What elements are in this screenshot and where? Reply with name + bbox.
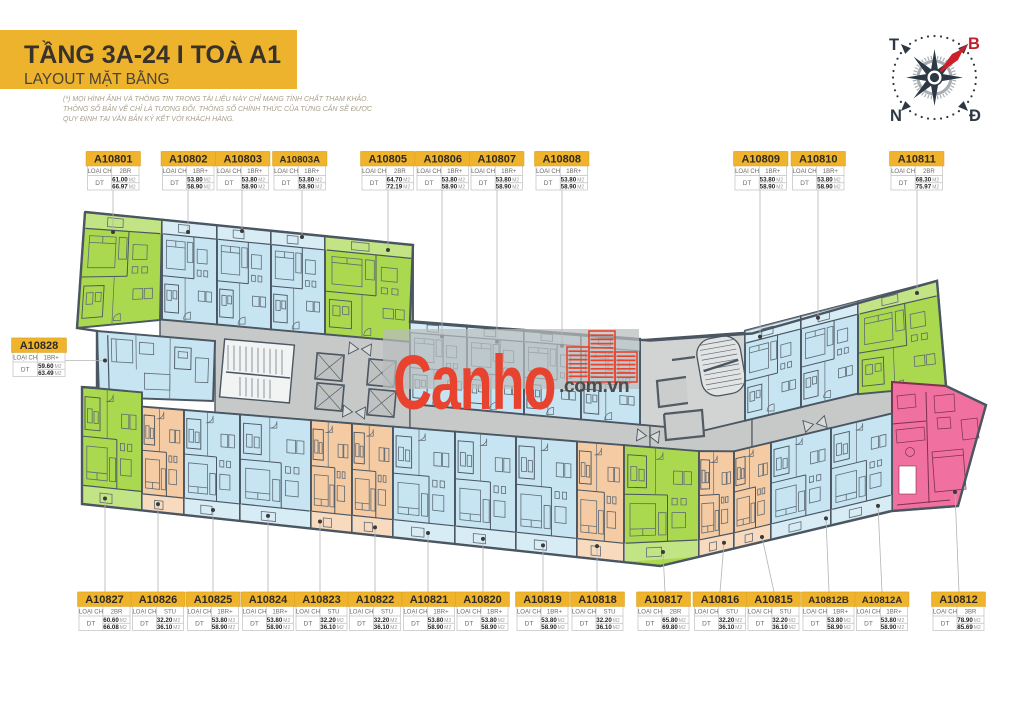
svg-text:A10810: A10810 xyxy=(799,154,838,166)
svg-text:LOẠI CH: LOẠI CH xyxy=(536,169,560,175)
svg-text:DT: DT xyxy=(899,180,908,187)
svg-text:DT: DT xyxy=(544,180,553,187)
svg-text:53.80: 53.80 xyxy=(817,177,833,184)
svg-text:.com.vn: .com.vn xyxy=(559,375,629,397)
svg-text:1BR+: 1BR+ xyxy=(217,610,233,616)
svg-text:M2: M2 xyxy=(512,178,519,184)
svg-text:60.60: 60.60 xyxy=(103,617,119,624)
svg-text:DT: DT xyxy=(304,621,313,628)
svg-text:A10819: A10819 xyxy=(523,594,562,606)
svg-text:M2: M2 xyxy=(120,625,127,631)
svg-text:A10828: A10828 xyxy=(20,340,59,352)
svg-text:M2: M2 xyxy=(315,185,322,191)
svg-text:M2: M2 xyxy=(512,185,519,191)
svg-text:M2: M2 xyxy=(679,618,686,624)
svg-text:STU: STU xyxy=(779,610,791,616)
svg-text:53.80: 53.80 xyxy=(496,177,512,184)
svg-text:A10811: A10811 xyxy=(898,154,936,166)
svg-text:M2: M2 xyxy=(834,178,841,184)
svg-text:32.20: 32.20 xyxy=(772,617,788,624)
svg-text:3BR: 3BR xyxy=(965,610,977,616)
svg-text:M2: M2 xyxy=(228,625,235,631)
svg-text:M2: M2 xyxy=(337,625,344,631)
svg-text:53.80: 53.80 xyxy=(442,177,458,184)
svg-text:M2: M2 xyxy=(789,625,796,631)
svg-text:58.90: 58.90 xyxy=(496,184,512,191)
svg-text:A10812A: A10812A xyxy=(862,595,903,606)
svg-text:LOẠI CH: LOẠI CH xyxy=(471,169,495,175)
svg-text:STU: STU xyxy=(327,610,339,616)
svg-text:M2: M2 xyxy=(613,618,620,624)
svg-text:53.80: 53.80 xyxy=(481,617,497,624)
svg-text:M2: M2 xyxy=(932,185,939,191)
svg-text:53.80: 53.80 xyxy=(881,617,897,624)
svg-text:LOẠI CH: LOẠI CH xyxy=(349,610,373,616)
svg-text:M2: M2 xyxy=(577,185,584,191)
svg-text:A10823: A10823 xyxy=(302,594,341,606)
svg-text:M2: M2 xyxy=(558,618,565,624)
svg-text:53.80: 53.80 xyxy=(541,617,557,624)
svg-text:A10824: A10824 xyxy=(249,594,288,606)
svg-text:32.20: 32.20 xyxy=(320,617,336,624)
svg-text:DT: DT xyxy=(756,621,765,628)
svg-text:LOẠI CH: LOẠI CH xyxy=(362,169,386,175)
svg-text:LOẠI CH: LOẠI CH xyxy=(242,610,266,616)
svg-text:58.90: 58.90 xyxy=(267,624,283,631)
svg-text:1BR+: 1BR+ xyxy=(272,610,288,616)
svg-text:M2: M2 xyxy=(444,625,451,631)
svg-text:M2: M2 xyxy=(498,625,505,631)
svg-text:M2: M2 xyxy=(129,185,136,191)
svg-text:LAYOUT MẶT BẰNG: LAYOUT MẶT BẰNG xyxy=(24,70,170,88)
svg-text:M2: M2 xyxy=(258,178,265,184)
svg-text:M2: M2 xyxy=(458,178,465,184)
svg-text:M2: M2 xyxy=(444,618,451,624)
svg-text:1BR+: 1BR+ xyxy=(823,169,839,175)
svg-text:DT: DT xyxy=(282,180,291,187)
svg-text:2BR: 2BR xyxy=(394,169,406,175)
svg-text:LOẠI CH: LOẠI CH xyxy=(572,610,596,616)
svg-text:M2: M2 xyxy=(120,618,127,624)
svg-text:M2: M2 xyxy=(974,618,981,624)
svg-text:78.90: 78.90 xyxy=(957,617,973,624)
svg-text:DT: DT xyxy=(525,621,534,628)
svg-text:59.60: 59.60 xyxy=(38,363,54,370)
svg-text:DT: DT xyxy=(580,621,589,628)
svg-text:DT: DT xyxy=(250,621,259,628)
svg-text:53.80: 53.80 xyxy=(561,177,577,184)
svg-text:1BR+: 1BR+ xyxy=(304,169,320,175)
svg-text:2BR: 2BR xyxy=(120,169,132,175)
svg-text:LOẠI CH: LOẠI CH xyxy=(694,610,718,616)
svg-text:M2: M2 xyxy=(228,618,235,624)
svg-text:M2: M2 xyxy=(735,618,742,624)
svg-text:DT: DT xyxy=(170,180,179,187)
svg-text:DT: DT xyxy=(646,621,655,628)
svg-text:A10807: A10807 xyxy=(477,154,516,166)
svg-text:M2: M2 xyxy=(337,618,344,624)
svg-text:2BR: 2BR xyxy=(670,610,682,616)
svg-text:A10812: A10812 xyxy=(939,594,978,606)
svg-text:A10817: A10817 xyxy=(644,594,683,606)
svg-text:M2: M2 xyxy=(55,371,62,377)
svg-text:1BR+: 1BR+ xyxy=(547,610,563,616)
svg-text:A10818: A10818 xyxy=(578,594,617,606)
svg-text:36.10: 36.10 xyxy=(596,624,612,631)
svg-text:DT: DT xyxy=(95,180,104,187)
svg-text:68.30: 68.30 xyxy=(916,177,932,184)
svg-text:LOẠI CH: LOẠI CH xyxy=(803,610,827,616)
svg-text:LOẠI CH: LOẠI CH xyxy=(13,356,37,362)
svg-text:58.90: 58.90 xyxy=(827,624,843,631)
svg-text:DT: DT xyxy=(811,621,820,628)
svg-text:LOẠI CH: LOẠI CH xyxy=(88,169,112,175)
svg-text:M2: M2 xyxy=(173,618,180,624)
svg-text:A10801: A10801 xyxy=(94,154,133,166)
svg-text:DT: DT xyxy=(87,621,96,628)
svg-text:LOẠI CH: LOẠI CH xyxy=(132,610,156,616)
svg-text:1BR+: 1BR+ xyxy=(765,169,781,175)
svg-text:LOẠI CH: LOẠI CH xyxy=(735,169,759,175)
svg-text:A10815: A10815 xyxy=(754,594,793,606)
svg-text:1BR+: 1BR+ xyxy=(44,356,60,362)
svg-text:36.10: 36.10 xyxy=(374,624,390,631)
svg-text:1BR+: 1BR+ xyxy=(247,169,263,175)
svg-text:36.10: 36.10 xyxy=(320,624,336,631)
svg-text:DT: DT xyxy=(465,621,474,628)
svg-text:N: N xyxy=(890,107,902,125)
svg-text:DT: DT xyxy=(195,621,204,628)
svg-text:DT: DT xyxy=(140,621,149,628)
svg-text:M2: M2 xyxy=(283,625,290,631)
svg-text:M2: M2 xyxy=(679,625,686,631)
svg-text:M2: M2 xyxy=(390,618,397,624)
svg-text:66.97: 66.97 xyxy=(112,184,128,191)
svg-text:Canho: Canho xyxy=(393,341,555,427)
svg-text:STU: STU xyxy=(603,610,615,616)
svg-text:M2: M2 xyxy=(315,178,322,184)
svg-text:53.80: 53.80 xyxy=(212,617,228,624)
svg-text:58.90: 58.90 xyxy=(442,184,458,191)
svg-text:A10809: A10809 xyxy=(741,154,780,166)
svg-text:LOẠI CH: LOẠI CH xyxy=(638,610,662,616)
svg-text:A10803: A10803 xyxy=(223,154,262,166)
svg-text:66.08: 66.08 xyxy=(103,624,119,631)
svg-text:LOẠI CH: LOẠI CH xyxy=(79,610,103,616)
svg-text:DT: DT xyxy=(479,180,488,187)
svg-text:LOẠI CH: LOẠI CH xyxy=(187,610,211,616)
svg-text:58.90: 58.90 xyxy=(187,184,203,191)
svg-text:M2: M2 xyxy=(776,185,783,191)
svg-text:DT: DT xyxy=(864,621,873,628)
svg-text:A10806: A10806 xyxy=(423,154,462,166)
svg-text:M2: M2 xyxy=(204,185,211,191)
svg-text:58.90: 58.90 xyxy=(242,184,258,191)
svg-text:53.80: 53.80 xyxy=(187,177,203,184)
svg-text:69.80: 69.80 xyxy=(662,624,678,631)
svg-text:M2: M2 xyxy=(897,618,904,624)
svg-text:53.80: 53.80 xyxy=(299,177,315,184)
svg-text:M2: M2 xyxy=(776,178,783,184)
svg-text:STU: STU xyxy=(164,610,176,616)
svg-text:M2: M2 xyxy=(283,618,290,624)
svg-text:A10826: A10826 xyxy=(139,594,178,606)
svg-text:M2: M2 xyxy=(974,625,981,631)
svg-text:65.80: 65.80 xyxy=(662,617,678,624)
svg-text:53.80: 53.80 xyxy=(428,617,444,624)
svg-text:M2: M2 xyxy=(735,625,742,631)
svg-text:M2: M2 xyxy=(204,178,211,184)
svg-text:DT: DT xyxy=(702,621,711,628)
svg-text:58.90: 58.90 xyxy=(760,184,776,191)
svg-text:M2: M2 xyxy=(403,185,410,191)
svg-text:58.90: 58.90 xyxy=(881,624,897,631)
svg-text:75.97: 75.97 xyxy=(916,184,932,191)
svg-text:DT: DT xyxy=(370,180,379,187)
svg-text:A10808: A10808 xyxy=(542,154,581,166)
svg-text:A10821: A10821 xyxy=(410,594,449,606)
svg-text:A10802: A10802 xyxy=(169,154,208,166)
svg-text:LOẠI CH: LOẠI CH xyxy=(217,169,241,175)
svg-text:58.90: 58.90 xyxy=(817,184,833,191)
svg-text:A10812B: A10812B xyxy=(808,595,849,606)
svg-text:LOẠI CH: LOẠI CH xyxy=(274,169,298,175)
svg-text:QUY ĐỊNH TẠI VĂN BẢN KÝ KẾT VỚ: QUY ĐỊNH TẠI VĂN BẢN KÝ KẾT VỚI KHÁCH HÀ… xyxy=(63,114,234,123)
svg-text:58.90: 58.90 xyxy=(299,184,315,191)
svg-text:A10803A: A10803A xyxy=(279,155,320,166)
svg-text:36.10: 36.10 xyxy=(719,624,735,631)
svg-text:M2: M2 xyxy=(498,618,505,624)
svg-text:58.90: 58.90 xyxy=(561,184,577,191)
svg-text:A10820: A10820 xyxy=(463,594,502,606)
svg-text:M2: M2 xyxy=(844,618,851,624)
svg-text:DT: DT xyxy=(21,367,30,374)
svg-text:32.20: 32.20 xyxy=(719,617,735,624)
svg-text:A10822: A10822 xyxy=(356,594,395,606)
svg-text:LOẠI CH: LOẠI CH xyxy=(933,610,957,616)
svg-text:85.69: 85.69 xyxy=(957,624,973,631)
svg-text:TẦNG 3A-24 I TOÀ A1: TẦNG 3A-24 I TOÀ A1 xyxy=(24,40,281,69)
svg-text:64.70: 64.70 xyxy=(387,177,403,184)
svg-text:1BR+: 1BR+ xyxy=(447,169,463,175)
svg-text:DT: DT xyxy=(225,180,234,187)
svg-text:M2: M2 xyxy=(613,625,620,631)
svg-text:53.80: 53.80 xyxy=(242,177,258,184)
svg-text:58.90: 58.90 xyxy=(541,624,557,631)
svg-text:1BR+: 1BR+ xyxy=(433,610,449,616)
svg-text:58.90: 58.90 xyxy=(428,624,444,631)
svg-text:LOẠI CH: LOẠI CH xyxy=(403,610,427,616)
svg-text:72.19: 72.19 xyxy=(387,184,403,191)
svg-text:32.20: 32.20 xyxy=(596,617,612,624)
svg-text:A10825: A10825 xyxy=(194,594,233,606)
svg-text:2BR: 2BR xyxy=(923,169,935,175)
svg-text:M2: M2 xyxy=(458,185,465,191)
svg-text:36.10: 36.10 xyxy=(157,624,173,631)
svg-text:M2: M2 xyxy=(577,178,584,184)
svg-text:32.20: 32.20 xyxy=(157,617,173,624)
svg-text:DT: DT xyxy=(743,180,752,187)
svg-text:A10805: A10805 xyxy=(368,154,407,166)
svg-text:DT: DT xyxy=(357,621,366,628)
svg-text:1BR+: 1BR+ xyxy=(501,169,517,175)
svg-text:M2: M2 xyxy=(173,625,180,631)
svg-text:58.90: 58.90 xyxy=(212,624,228,631)
svg-text:LOẠI CH: LOẠI CH xyxy=(793,169,817,175)
svg-text:(*) MỌI HÌNH ẢNH VÀ THÔNG TIN: (*) MỌI HÌNH ẢNH VÀ THÔNG TIN TRONG TÀI … xyxy=(63,94,369,103)
svg-text:Đ: Đ xyxy=(969,107,981,125)
svg-text:A10816: A10816 xyxy=(701,594,740,606)
svg-text:M2: M2 xyxy=(844,625,851,631)
svg-text:LOẠI CH: LOẠI CH xyxy=(163,169,187,175)
svg-text:53.80: 53.80 xyxy=(827,617,843,624)
svg-text:DT: DT xyxy=(800,180,809,187)
svg-text:53.80: 53.80 xyxy=(760,177,776,184)
svg-text:A10827: A10827 xyxy=(85,594,124,606)
svg-text:DT: DT xyxy=(425,180,434,187)
svg-text:63.49: 63.49 xyxy=(38,370,54,377)
svg-text:32.20: 32.20 xyxy=(374,617,390,624)
svg-text:LOẠI CH: LOẠI CH xyxy=(417,169,441,175)
svg-text:M2: M2 xyxy=(932,178,939,184)
svg-text:M2: M2 xyxy=(129,178,136,184)
svg-text:M2: M2 xyxy=(55,364,62,370)
svg-text:1BR+: 1BR+ xyxy=(886,610,902,616)
svg-text:M2: M2 xyxy=(789,618,796,624)
svg-text:B: B xyxy=(968,35,980,53)
svg-text:THÔNG SỐ BẢN VẼ CHỈ LÀ TƯƠNG Đ: THÔNG SỐ BẢN VẼ CHỈ LÀ TƯƠNG ĐỐI. THÔNG … xyxy=(63,104,373,113)
svg-text:STU: STU xyxy=(381,610,393,616)
svg-text:T: T xyxy=(889,36,899,54)
svg-text:53.80: 53.80 xyxy=(267,617,283,624)
svg-text:DT: DT xyxy=(941,621,950,628)
svg-text:58.90: 58.90 xyxy=(481,624,497,631)
svg-text:M2: M2 xyxy=(403,178,410,184)
svg-text:36.10: 36.10 xyxy=(772,624,788,631)
svg-text:LOẠI CH: LOẠI CH xyxy=(748,610,772,616)
svg-text:M2: M2 xyxy=(897,625,904,631)
svg-text:M2: M2 xyxy=(834,185,841,191)
svg-text:LOẠI CH: LOẠI CH xyxy=(891,169,915,175)
svg-text:M2: M2 xyxy=(558,625,565,631)
svg-text:1BR+: 1BR+ xyxy=(193,169,209,175)
svg-text:LOẠI CH: LOẠI CH xyxy=(856,610,880,616)
svg-text:M2: M2 xyxy=(258,185,265,191)
svg-text:2BR: 2BR xyxy=(111,610,123,616)
svg-text:M2: M2 xyxy=(390,625,397,631)
svg-text:LOẠI CH: LOẠI CH xyxy=(517,610,541,616)
svg-text:STU: STU xyxy=(726,610,738,616)
svg-text:1BR+: 1BR+ xyxy=(487,610,503,616)
svg-text:LOẠI CH: LOẠI CH xyxy=(457,610,481,616)
svg-text:61.00: 61.00 xyxy=(112,177,128,184)
svg-text:DT: DT xyxy=(411,621,420,628)
svg-text:1BR+: 1BR+ xyxy=(833,610,849,616)
svg-text:1BR+: 1BR+ xyxy=(566,169,582,175)
svg-text:LOẠI CH: LOẠI CH xyxy=(296,610,320,616)
